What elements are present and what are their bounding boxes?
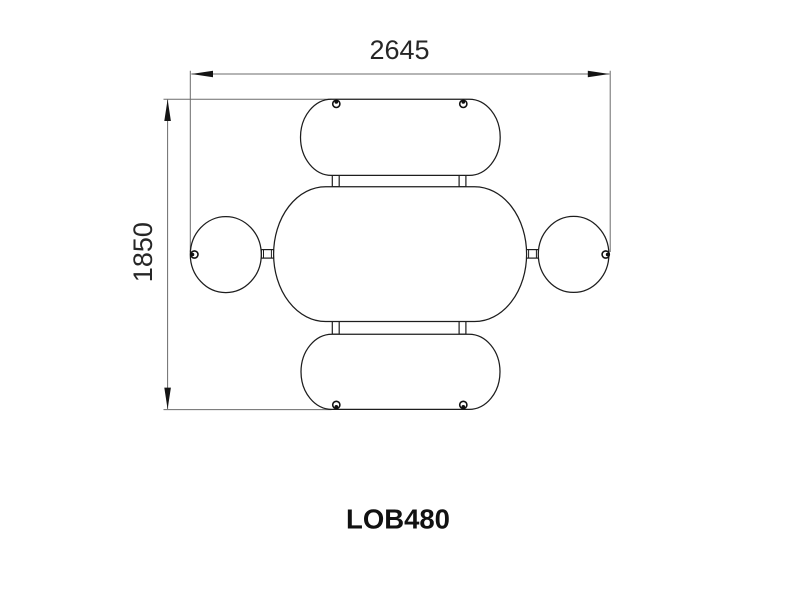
svg-text:2645: 2645 [369, 35, 429, 65]
svg-text:1850: 1850 [128, 222, 158, 282]
svg-text:LOB480: LOB480 [346, 504, 450, 535]
